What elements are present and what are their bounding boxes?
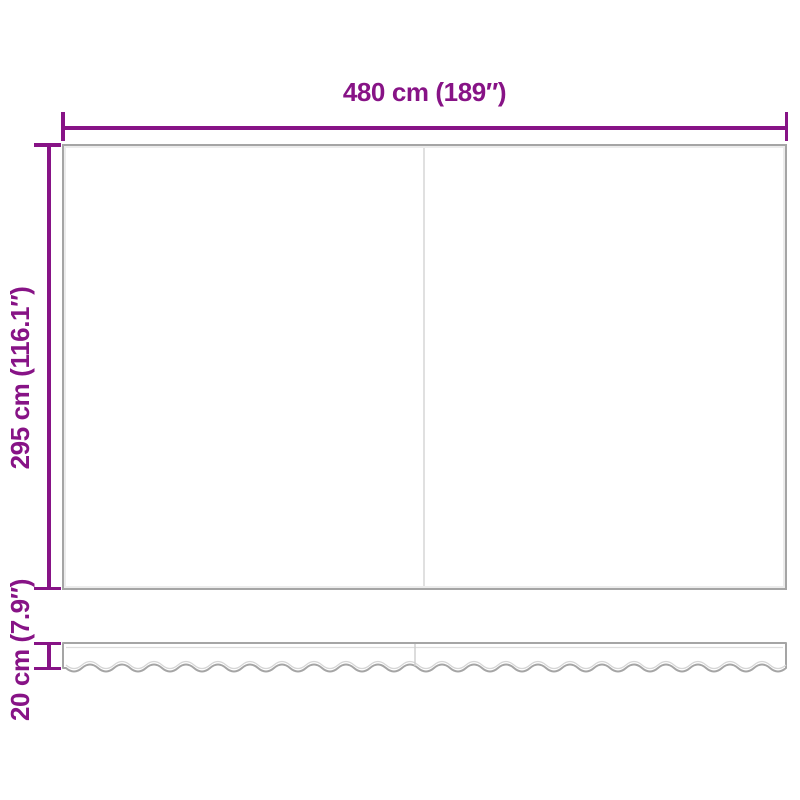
height-dimension-line <box>47 143 51 590</box>
width-dimension-tick-left <box>61 112 65 141</box>
dimension-diagram: 480 cm (189″) 295 cm (116.1″) 20 cm (7.9… <box>0 0 800 800</box>
valance-dimension-label-wrapper: 20 cm (7.9″) <box>4 520 36 780</box>
height-dimension-tick-top <box>34 143 61 147</box>
height-dimension-label: 295 cm (116.1″) <box>5 287 36 470</box>
valance-strip <box>61 641 788 675</box>
height-dimension-label-wrapper: 295 cm (116.1″) <box>4 208 36 548</box>
fabric-panel <box>62 144 787 590</box>
width-dimension-line <box>61 126 788 130</box>
valance-dimension-label: 20 cm (7.9″) <box>5 579 36 721</box>
valance-dimension-tick-top <box>34 642 61 646</box>
width-dimension-label: 480 cm (189″) <box>62 79 787 105</box>
valance-dimension-line <box>47 644 51 668</box>
valance-dimension-tick-bottom <box>34 667 61 671</box>
height-dimension-tick-bottom <box>34 587 61 591</box>
fabric-seam-line <box>423 148 425 586</box>
width-dimension-tick-right <box>785 112 789 141</box>
